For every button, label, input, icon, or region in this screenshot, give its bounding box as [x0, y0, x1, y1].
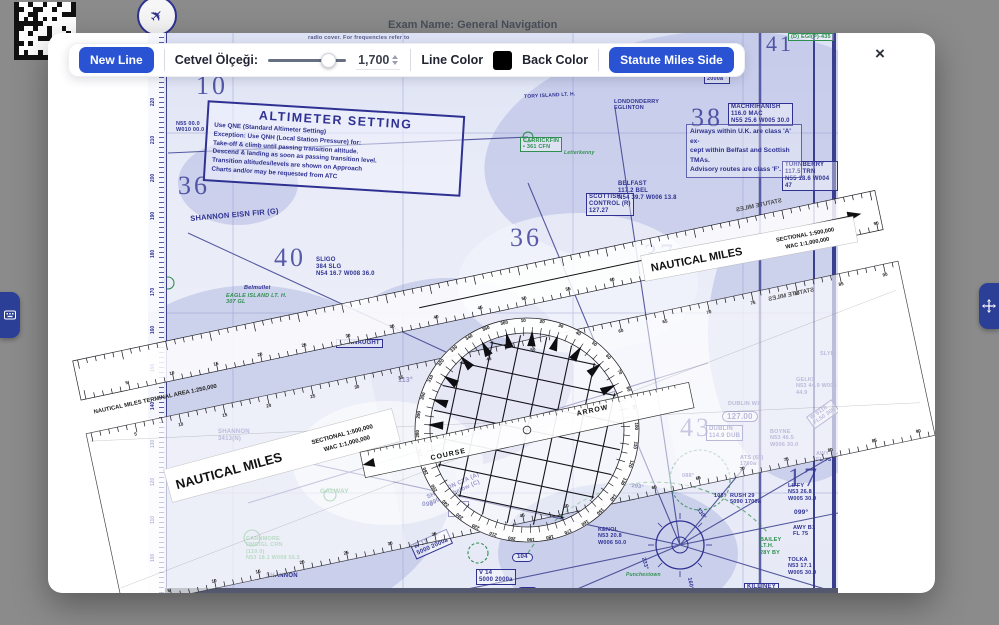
scale-stepper[interactable] [392, 55, 398, 65]
chart-label: SHANNON [266, 573, 298, 580]
svg-text:5: 5 [125, 380, 129, 386]
chart-label: SLYD. [820, 351, 837, 357]
chart-label: 37 [644, 241, 676, 267]
chart-label: W 9110 FL50 300 [806, 399, 838, 429]
plotter-tool-modal: 2302202102001901801701601501401301201101… [48, 33, 935, 593]
chart-label: 099° [794, 509, 808, 517]
chart-label: RUSH 29 5090 1700a [730, 493, 761, 506]
chart-label: SLIGO 384 SLG N54 16.7 W008 36.0 [316, 257, 375, 278]
chart-label: radio cover. For frequencies refer to [308, 35, 410, 41]
ruler-scale-value[interactable]: 1,700 [358, 53, 389, 67]
chart-label: SHANNON 3413(N) [218, 429, 250, 443]
move-tool-handle[interactable] [979, 283, 999, 329]
move-icon [982, 299, 996, 313]
exam-title: Exam Name: General Navigation [388, 19, 557, 31]
chart-label: MACHRIHANISH 116.0 MAC N55 25.6 W005 30.… [728, 103, 793, 126]
chart-label: DUBLIN WX [728, 401, 761, 407]
chart-label: (D) EGI(P)-435 [788, 33, 834, 41]
chart-label: BAILEY LT.H. 28Y BY [760, 537, 781, 556]
back-color-label[interactable]: Back Color [522, 53, 588, 67]
keyboard-panel-handle[interactable] [0, 292, 20, 338]
svg-text:85: 85 [871, 437, 877, 443]
chart-label: W 13 5000 2000a [410, 529, 453, 560]
chart-label: LONDONDERRY EGLINTON [614, 99, 659, 112]
step-down-icon[interactable] [392, 61, 398, 65]
altimeter-setting-note: ALTIMETER SETTING Use QNE (Standard Alti… [203, 100, 465, 196]
keyboard-icon [4, 309, 16, 321]
chart-label: TORY ISLAND LT. H. [524, 92, 576, 101]
svg-text:85: 85 [838, 281, 844, 287]
svg-text:90: 90 [882, 272, 888, 278]
chart-label: AWY B1 FL 75 [793, 525, 815, 538]
chart-label: 41 [766, 33, 794, 55]
chart-label: N55 00.0 W010 00.0 [176, 121, 204, 134]
ruler-scale-slider[interactable] [268, 53, 346, 67]
chart-label: 113° [398, 377, 413, 385]
svg-text:90: 90 [915, 428, 921, 434]
chart-label: EAGLE ISLAND LT. H. 307 GL [226, 293, 287, 306]
chart-label: 233° [640, 557, 649, 570]
chart-label: SHANNON EISN FIR (G) [190, 207, 279, 224]
chart-label: 127.00 [722, 411, 758, 422]
chart-label: ATS (65) 1700a [740, 455, 764, 468]
chart-label: 090° [422, 501, 436, 509]
chart-label: Letterkenny [564, 151, 595, 157]
chart-label: 108° [714, 493, 726, 499]
svg-text:5: 5 [134, 431, 138, 437]
chart-label: 251° [610, 488, 620, 502]
ruler-scale-input[interactable]: 1,700 [356, 51, 400, 70]
chart-label: GELKI N53 44.9 W005 44.9 [796, 377, 838, 396]
chart-label: Punchestown [626, 573, 661, 579]
chart-label: GALWAY [320, 488, 349, 496]
chart-label: AWY B- FL 75 [816, 451, 837, 464]
uk-airways-note: Airways within U.K. are class 'A' ex- ce… [686, 124, 802, 178]
chart-label: V 14 5000 2000a [476, 569, 516, 585]
chart-label: 293° [631, 483, 644, 491]
chart-label: CARNMORE DME/GL CRN (110.0) N53 18.1 W00… [246, 536, 300, 562]
chart-bottom-border [165, 588, 838, 593]
divider [164, 49, 165, 71]
divider [410, 49, 411, 71]
chart-label: CONNAUGHT [336, 339, 383, 348]
chart-label: 130° [695, 507, 707, 521]
chart-label: BELFAST 117.2 BEL N54 39.7 W006 13.8 [618, 181, 677, 202]
plotter-toolbar: New Line Cetvel Ölçeği: 1,700 Line Color… [68, 43, 745, 77]
chart-label: KENOL N53 20.8 W006 50.0 [598, 527, 626, 546]
close-icon[interactable]: × [869, 43, 891, 65]
chart-label: 36 [510, 225, 542, 251]
slider-thumb[interactable] [321, 53, 336, 68]
chart-label: LIFFY N53 26.8 W005 30.0 [788, 483, 816, 502]
chart-label: 088° [682, 473, 694, 479]
airways-line: Advisory routes are class 'F'. [690, 165, 798, 175]
ruler-scale-label: Cetvel Ölçeği: [175, 53, 258, 67]
chart-label: BOYNE N53 46.5 W006 30.0 [770, 429, 798, 448]
aeronautical-chart[interactable]: 2302202102001901801701601501401301201101… [148, 33, 838, 593]
new-line-button[interactable]: New Line [79, 47, 154, 73]
chart-label: 104 [512, 553, 533, 562]
chart-label: TOLKA N53 17.1 W005 30.0 [788, 557, 816, 576]
line-color-label: Line Color [421, 53, 483, 67]
airways-line: cept within Belfast and Scottish TMAs. [690, 146, 798, 165]
chart-label: CARRICKFIN • 361 CFN [520, 137, 562, 152]
step-up-icon[interactable] [392, 55, 398, 59]
airplane-icon: ✈ [145, 4, 169, 28]
airways-line: Airways within U.K. are class 'A' ex- [690, 127, 798, 146]
chart-label: DUBLIN 114.9 DUB [706, 425, 743, 441]
svg-text:90: 90 [873, 220, 879, 226]
divider [598, 49, 599, 71]
statute-miles-side-button[interactable]: Statute Miles Side [609, 47, 734, 73]
line-color-swatch[interactable] [493, 51, 512, 70]
app-stage: ✈ Exam Name: General Navigation [0, 0, 999, 625]
chart-label: W 15 1000 [448, 501, 469, 517]
chart-label: Belmullet [244, 285, 271, 291]
chart-label: 40 [274, 245, 306, 271]
